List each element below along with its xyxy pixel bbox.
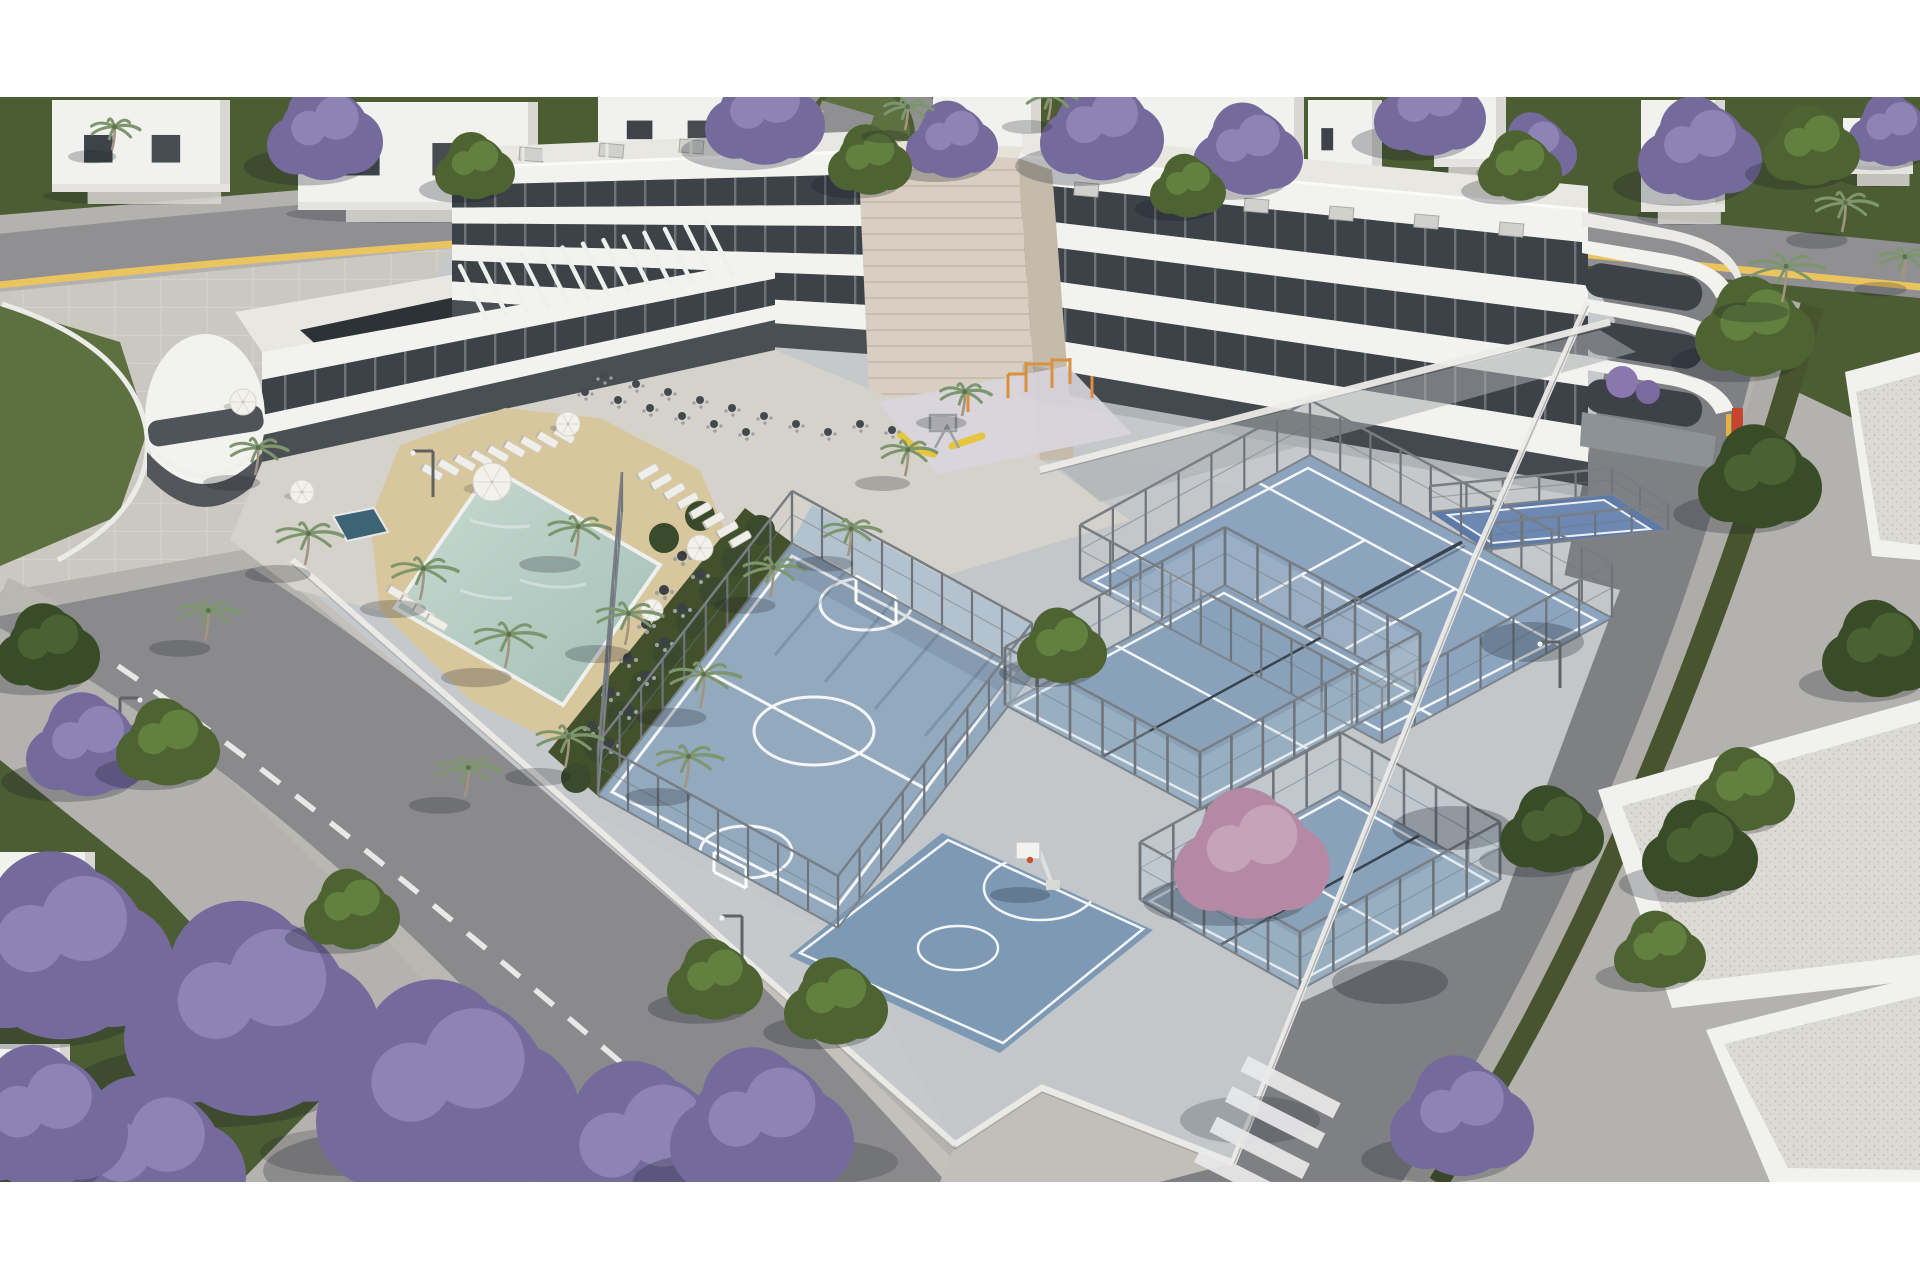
tree-shadow	[1392, 806, 1512, 850]
bougainvillea-2	[1636, 380, 1660, 404]
scene	[0, 62, 1920, 1252]
tree-shadow	[1332, 960, 1448, 1004]
shop-sign-accent	[1726, 414, 1731, 436]
hedge-bush	[649, 523, 679, 553]
bougainvillea	[1606, 366, 1638, 398]
letterbox-top	[0, 0, 1920, 97]
aerial-architectural-render	[0, 0, 1920, 1280]
ac-unit	[1329, 206, 1354, 221]
render-canvas	[0, 0, 1920, 1280]
ac-unit	[1244, 198, 1269, 213]
letterbox-bottom	[0, 1182, 1920, 1280]
tree-shadow	[1480, 622, 1584, 662]
ac-unit	[599, 143, 624, 158]
ac-unit	[1499, 222, 1524, 237]
ac-unit	[1414, 214, 1439, 229]
house	[43, 100, 230, 205]
